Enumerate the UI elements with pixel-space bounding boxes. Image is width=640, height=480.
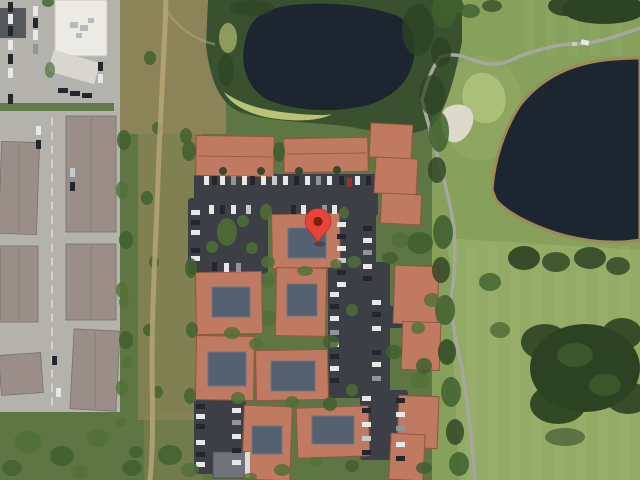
car <box>232 420 241 425</box>
tree <box>446 419 464 445</box>
car <box>204 176 209 185</box>
tree <box>87 429 109 447</box>
car <box>396 426 405 431</box>
condo-building <box>284 137 369 172</box>
tree <box>411 372 429 388</box>
mow-stripe <box>524 0 534 56</box>
rooftop-unit <box>80 25 88 31</box>
car <box>330 316 339 321</box>
tree <box>260 204 272 220</box>
car <box>196 424 205 429</box>
tree <box>231 392 245 404</box>
car <box>337 222 346 227</box>
tree <box>433 215 453 249</box>
car <box>291 205 296 214</box>
car <box>250 176 255 185</box>
tree <box>479 273 501 291</box>
tree <box>346 304 358 316</box>
car <box>362 408 371 413</box>
tree <box>557 343 593 367</box>
car <box>58 88 68 93</box>
tree <box>224 327 240 339</box>
tree <box>333 166 341 174</box>
satellite-canvas <box>0 0 640 480</box>
tree <box>141 191 153 205</box>
tree <box>347 256 361 268</box>
car <box>33 44 38 54</box>
tree <box>184 388 196 404</box>
car <box>209 205 214 214</box>
tree <box>249 338 263 350</box>
tree <box>411 322 425 334</box>
rooftop-unit <box>88 18 94 23</box>
car <box>362 436 371 441</box>
tree <box>424 293 440 307</box>
tree <box>116 181 128 199</box>
flat-roof-center <box>271 361 315 391</box>
tree <box>391 232 409 248</box>
tree <box>119 296 129 308</box>
tree <box>428 157 446 183</box>
car <box>396 412 405 417</box>
tree <box>330 259 342 269</box>
tree <box>416 462 432 474</box>
hedge-row <box>0 103 114 111</box>
car <box>337 234 346 239</box>
car <box>363 276 372 281</box>
car <box>196 414 205 419</box>
car <box>330 330 339 335</box>
car <box>372 376 381 381</box>
car <box>212 262 217 271</box>
car <box>330 292 339 297</box>
car <box>572 42 577 46</box>
car <box>232 434 241 439</box>
car <box>8 68 13 78</box>
pin-inner-dot <box>313 217 322 226</box>
tree <box>508 246 540 270</box>
car <box>232 448 241 453</box>
car <box>396 442 405 447</box>
car <box>372 300 381 305</box>
car <box>36 126 41 135</box>
car <box>261 176 266 185</box>
tree <box>345 460 359 472</box>
tree <box>180 128 192 144</box>
car <box>231 205 236 214</box>
tree <box>295 167 303 175</box>
car <box>8 26 13 36</box>
satellite-map[interactable] <box>0 0 640 480</box>
rooftop-unit <box>76 33 82 38</box>
car <box>98 74 103 83</box>
car <box>272 176 277 185</box>
top-pond <box>243 4 414 111</box>
landscape-island <box>237 215 249 227</box>
tree <box>574 247 606 269</box>
car <box>236 263 241 272</box>
tree <box>416 358 432 374</box>
car <box>363 238 372 243</box>
landscape-island <box>206 241 218 253</box>
car <box>337 246 346 251</box>
tree <box>218 54 234 86</box>
tree <box>144 51 156 65</box>
car <box>362 422 371 427</box>
tree <box>119 231 133 249</box>
car <box>339 176 344 185</box>
car <box>372 312 381 317</box>
car <box>330 366 339 371</box>
car <box>246 205 251 214</box>
car <box>232 460 241 465</box>
tree <box>2 460 22 476</box>
car <box>33 6 38 16</box>
car <box>70 182 75 191</box>
tree <box>129 446 143 458</box>
tree <box>186 322 198 338</box>
tree <box>419 75 445 115</box>
tree <box>297 266 313 276</box>
warehouse <box>0 141 40 234</box>
car <box>196 440 205 445</box>
car <box>366 176 371 185</box>
landscape-island <box>217 218 237 246</box>
tree <box>589 374 621 396</box>
tree <box>382 252 398 264</box>
car <box>305 176 310 185</box>
car <box>362 396 371 401</box>
flat-roof-center <box>212 287 250 317</box>
car <box>231 176 236 185</box>
tree <box>323 397 337 411</box>
car <box>363 226 372 231</box>
tree <box>339 207 349 219</box>
tree <box>490 322 510 338</box>
tree <box>119 331 133 349</box>
car <box>8 40 13 50</box>
tree <box>71 465 89 479</box>
tree <box>323 335 339 349</box>
tree <box>432 257 450 283</box>
tree <box>262 272 274 288</box>
condo-building <box>380 193 422 225</box>
car <box>98 62 103 71</box>
car <box>363 264 372 269</box>
car <box>191 210 200 215</box>
car <box>191 248 200 253</box>
flat-roof-center <box>252 426 282 454</box>
tree <box>122 356 132 368</box>
car <box>56 388 61 397</box>
clubhouse <box>213 452 249 478</box>
mow-stripe <box>510 246 520 480</box>
car <box>224 263 229 272</box>
car <box>283 176 288 185</box>
tree <box>346 384 358 396</box>
car <box>8 2 13 12</box>
tree <box>219 167 227 175</box>
car <box>330 378 339 383</box>
condo-building <box>369 123 413 159</box>
car <box>33 18 38 28</box>
car <box>362 450 371 455</box>
car <box>196 404 205 409</box>
tree <box>181 463 199 477</box>
car <box>363 250 372 255</box>
tree <box>45 62 55 78</box>
tree <box>116 380 128 396</box>
flat-roof-center <box>312 416 354 444</box>
car <box>330 304 339 309</box>
tree <box>185 258 197 278</box>
flat-roof-center <box>287 284 317 316</box>
tree <box>449 452 469 476</box>
car <box>294 176 299 185</box>
car <box>301 205 306 214</box>
car <box>337 270 346 275</box>
car <box>8 54 13 64</box>
rooftop-unit <box>70 22 78 28</box>
car <box>372 350 381 355</box>
car <box>327 176 332 185</box>
car <box>8 14 13 24</box>
car <box>242 176 247 185</box>
tree <box>285 396 299 408</box>
tree <box>158 445 182 465</box>
car <box>33 30 38 40</box>
flat-roof-center <box>208 352 246 386</box>
tree <box>50 446 74 466</box>
car <box>191 220 200 225</box>
car <box>196 452 205 457</box>
car <box>8 94 13 104</box>
car <box>52 356 57 365</box>
tree <box>273 142 285 162</box>
car <box>332 205 337 214</box>
condo-building <box>374 157 418 195</box>
car <box>212 176 217 185</box>
tree <box>116 282 128 298</box>
tree <box>261 256 275 268</box>
car <box>70 168 75 177</box>
car <box>36 140 41 149</box>
tree <box>14 431 42 453</box>
car <box>347 178 352 187</box>
tree <box>482 0 502 12</box>
car <box>330 354 339 359</box>
tree <box>274 464 290 476</box>
tree <box>407 232 433 254</box>
car <box>396 398 405 403</box>
car <box>316 176 321 185</box>
car <box>396 456 405 461</box>
car <box>337 282 346 287</box>
algae-patch <box>219 23 237 53</box>
tree <box>441 377 461 407</box>
tree <box>117 130 131 150</box>
pin-shadow <box>314 242 326 247</box>
tree <box>116 417 126 427</box>
tree <box>230 0 274 16</box>
car <box>70 91 80 96</box>
tree <box>122 460 142 476</box>
car <box>372 362 381 367</box>
tree <box>257 167 265 175</box>
tree <box>429 112 449 152</box>
tree <box>182 141 196 161</box>
car <box>220 205 225 214</box>
car <box>372 326 381 331</box>
tree <box>310 457 322 467</box>
tree <box>545 428 585 446</box>
tree <box>431 37 451 67</box>
landscape-island <box>246 242 258 254</box>
tree <box>460 4 480 18</box>
warehouse <box>0 353 43 396</box>
tree <box>438 339 456 365</box>
car <box>191 230 200 235</box>
tree <box>262 310 276 326</box>
tree <box>606 257 630 275</box>
car <box>355 176 360 185</box>
tree <box>542 252 570 272</box>
car <box>82 93 92 98</box>
car <box>232 408 241 413</box>
car <box>220 176 225 185</box>
tree <box>402 4 434 56</box>
tree <box>530 384 586 424</box>
tree <box>386 345 402 359</box>
